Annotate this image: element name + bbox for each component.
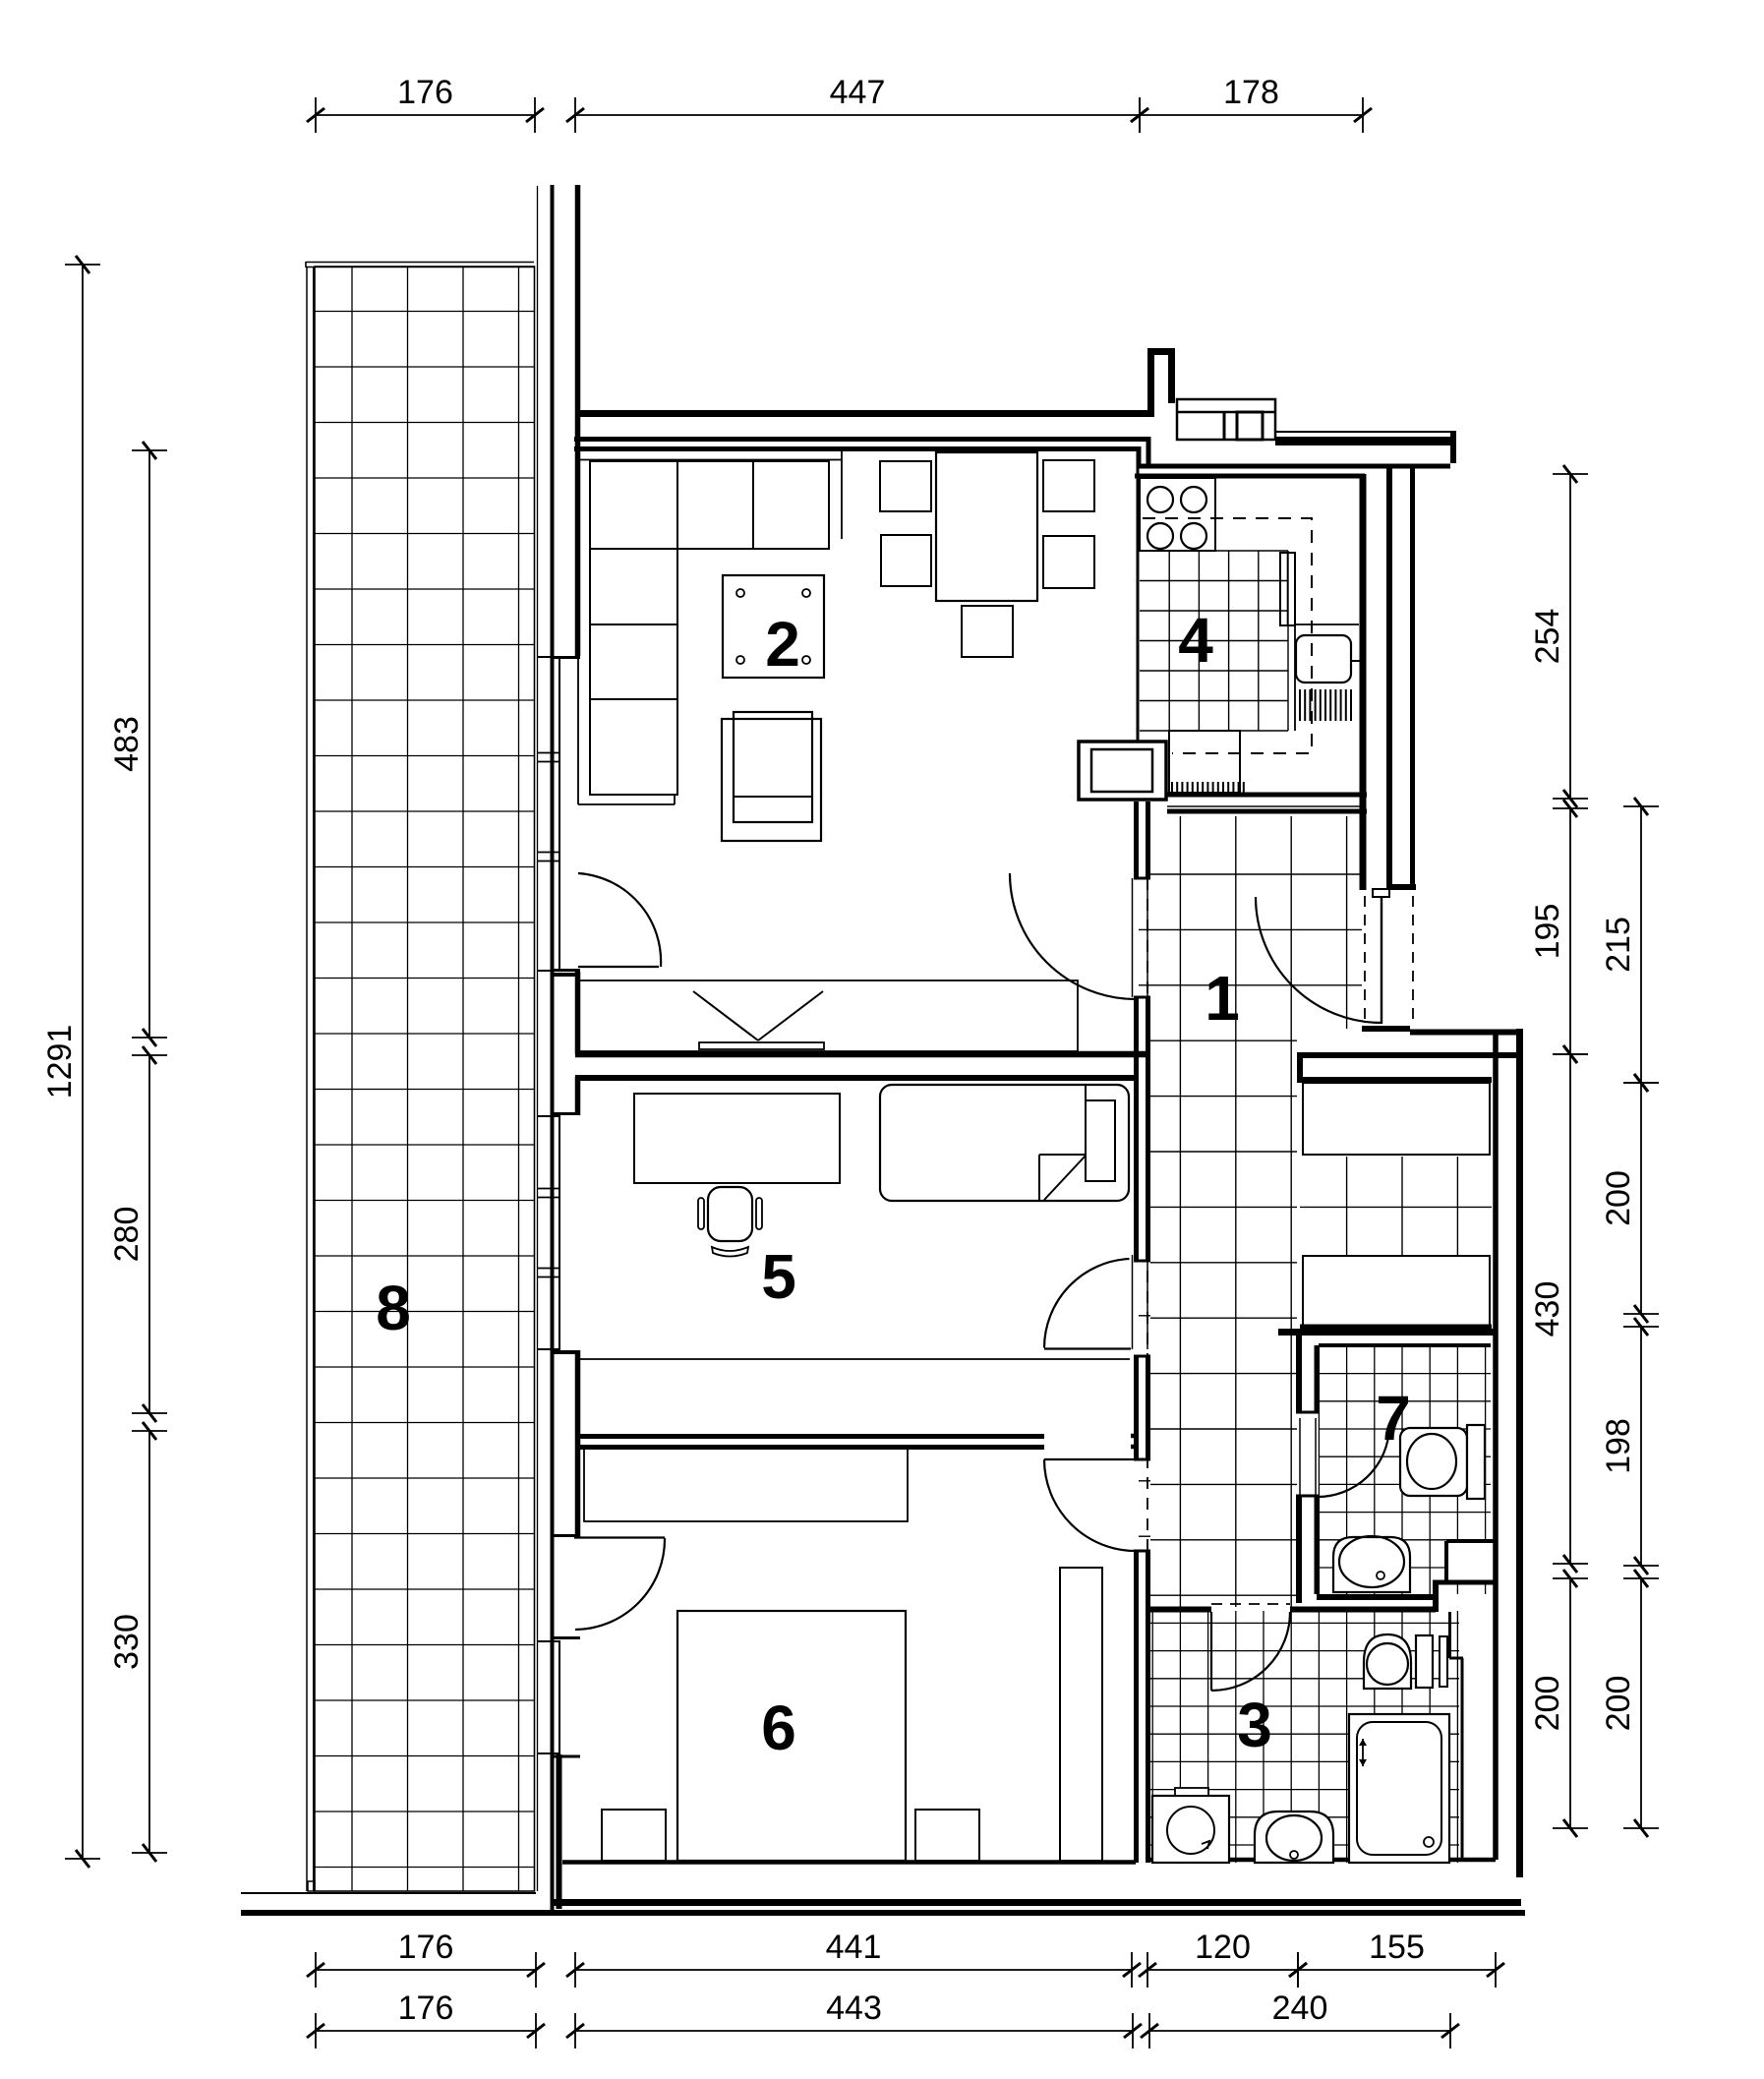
svg-text:2: 2 [765,609,800,680]
svg-text:443: 443 [826,1990,882,2027]
svg-text:7: 7 [1376,1383,1411,1454]
svg-text:6: 6 [761,1693,796,1763]
svg-text:483: 483 [108,716,146,772]
svg-text:200: 200 [1600,1170,1637,1226]
svg-text:200: 200 [1600,1676,1637,1732]
svg-text:215: 215 [1600,917,1637,973]
svg-text:4: 4 [1178,605,1213,676]
svg-text:5: 5 [761,1241,796,1312]
svg-text:120: 120 [1195,1929,1251,1966]
svg-text:240: 240 [1272,1990,1328,2027]
svg-text:3: 3 [1237,1690,1272,1760]
svg-text:200: 200 [1529,1676,1566,1732]
svg-text:441: 441 [826,1929,882,1966]
svg-text:176: 176 [397,74,453,111]
svg-text:195: 195 [1529,904,1566,960]
svg-text:254: 254 [1529,609,1566,665]
svg-text:176: 176 [398,1929,454,1966]
svg-text:280: 280 [108,1207,146,1263]
svg-text:1291: 1291 [41,1025,79,1099]
svg-text:155: 155 [1369,1929,1425,1966]
svg-text:176: 176 [398,1990,454,2027]
svg-text:8: 8 [376,1273,411,1343]
svg-text:447: 447 [830,74,886,111]
svg-text:1: 1 [1205,963,1240,1034]
svg-text:330: 330 [108,1614,146,1670]
svg-text:198: 198 [1600,1418,1637,1474]
svg-text:178: 178 [1223,74,1279,111]
svg-text:430: 430 [1529,1281,1566,1337]
